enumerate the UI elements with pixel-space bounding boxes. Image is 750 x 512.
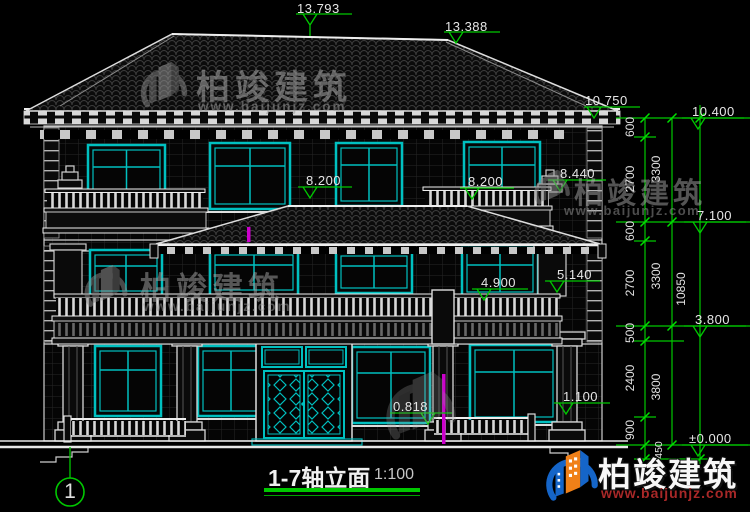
window [205,143,295,212]
elevation-marker-value: 10.750 [585,93,628,108]
elevation-marker-value: 13.388 [445,19,488,34]
elevation-marker-symbol [684,326,746,337]
window [331,143,407,209]
window [90,346,166,419]
dimension-label-overall: 10850 [674,261,688,317]
title-underline-thin [264,495,420,496]
drawing-scale: 1:100 [374,466,414,484]
elevation-marker-value: 8.440 [560,166,595,181]
elevation-marker-symbol [682,118,744,129]
window [336,251,412,293]
entrance-door [252,343,362,445]
dimension-label: 2700 [623,151,637,207]
brand-url: www.baijunjz.com [601,485,738,501]
third-floor-balcony-left [43,189,209,233]
watermark-url-text: www.baijunjz.com [198,99,347,114]
elevation-marker-value: ±0.000 [689,431,732,446]
elevation-marker-symbol [296,14,352,36]
dimension-label: 2700 [623,255,637,311]
dimension-label: 600 [623,99,637,155]
elevation-marker-value: 8.200 [306,173,341,188]
elevation-marker-value: 13.793 [297,1,340,16]
elevation-marker-value: 7.100 [697,208,732,223]
facade-linework [0,0,750,512]
axis-bubble-number: 1 [56,480,84,504]
window [465,345,563,425]
cad-elevation-drawing: 柏竣建筑 www.baijunjz.com 柏竣建筑 www.baijunjz.… [0,0,750,512]
dimension-label: 3300 [649,141,663,197]
door-decor-pattern [268,375,300,434]
dimension-label: 3300 [649,248,663,304]
elevation-marker-value: 8.200 [468,174,503,189]
elevation-marker-value: 5.140 [557,267,592,282]
dimension-label: 3800 [649,359,663,415]
elevation-marker-value: 1.100 [563,389,598,404]
title-underline [264,488,420,492]
brand-logo-icon [543,446,601,510]
watermark-logo-icon [82,260,130,316]
elevation-marker-value: 4.900 [481,275,516,290]
ground-line [0,441,628,447]
elevation-marker-value: 10.400 [692,104,735,119]
balcony-pier [432,290,454,344]
dimension-label: 600 [623,203,637,259]
elevation-marker-value: 0.818 [393,399,428,414]
watermark-url-text: www.baijunjz.com [143,299,292,314]
dimension-label: 2400 [623,350,637,406]
elevation-marker-symbol [684,222,746,233]
elevation-marker-value: 3.800 [695,312,730,327]
door-knob [301,402,305,406]
watermark-logo-icon [138,58,190,116]
